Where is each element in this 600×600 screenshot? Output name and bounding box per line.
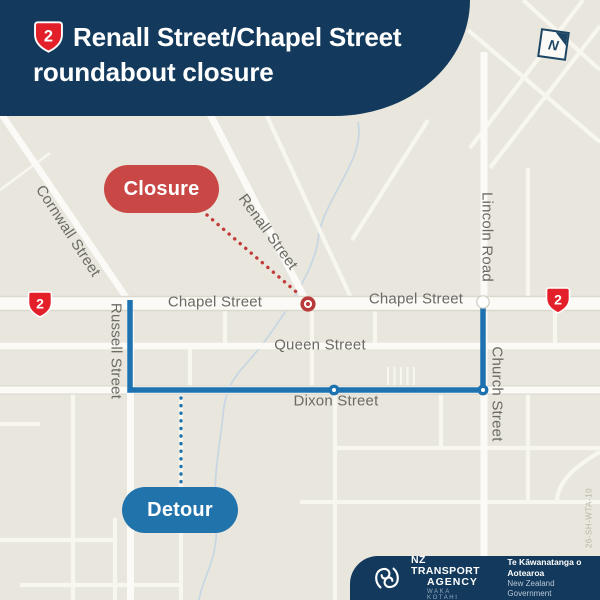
svg-text:2: 2 xyxy=(554,292,562,308)
closure-marker xyxy=(300,296,315,311)
closure-callout: Closure xyxy=(104,165,219,213)
north-letter: N xyxy=(539,30,567,58)
map-reference-watermark: 26-SH-WTA-10 xyxy=(585,488,594,548)
highway-2-shield-title: 2 xyxy=(33,20,64,54)
street-label-church: Church Street xyxy=(489,346,506,441)
page-title-line1: Renall Street/Chapel Street xyxy=(73,20,401,54)
nz-transport-agency-logo xyxy=(372,563,402,593)
secondary-roads xyxy=(0,52,600,600)
agency-footer: NZ TRANSPORT AGENCY WAKA KOTAHI Te Kāwan… xyxy=(350,556,600,600)
street-label-lincoln: Lincoln Road xyxy=(479,192,496,282)
street-label-queen: Queen Street xyxy=(274,337,366,354)
title-banner: 2 Renall Street/Chapel Street roundabout… xyxy=(0,0,470,116)
detour-callout-label: Detour xyxy=(147,499,213,522)
agency-name-line1: NZ TRANSPORT xyxy=(411,555,482,577)
government-line1: Te Kāwanatanga o Aotearoa xyxy=(507,557,600,579)
parking-lane-marks xyxy=(388,367,414,385)
highway-2-shield-west: 2 xyxy=(27,290,53,319)
svg-text:2: 2 xyxy=(36,296,44,312)
street-label-chapel-east: Chapel Street xyxy=(369,291,463,308)
closure-callout-label: Closure xyxy=(124,178,200,201)
roundabout-open-marker xyxy=(477,296,489,308)
detour-callout: Detour xyxy=(122,487,238,533)
svg-text:2: 2 xyxy=(44,28,53,46)
street-label-dixon: Dixon Street xyxy=(294,393,379,410)
highway-2-shield-east: 2 xyxy=(545,286,571,315)
street-label-chapel-west: Chapel Street xyxy=(168,294,262,311)
page-title-line2: roundabout closure xyxy=(33,55,401,89)
agency-name-line2: AGENCY xyxy=(427,577,482,588)
street-label-russell: Russell Street xyxy=(108,303,125,399)
north-compass: N xyxy=(537,28,570,61)
government-line2: New Zealand Government xyxy=(507,579,600,600)
agency-name-line3: WAKA KOTAHI xyxy=(427,589,482,600)
infographic-canvas: Cornwall Street Renall Street Chapel Str… xyxy=(0,0,600,600)
